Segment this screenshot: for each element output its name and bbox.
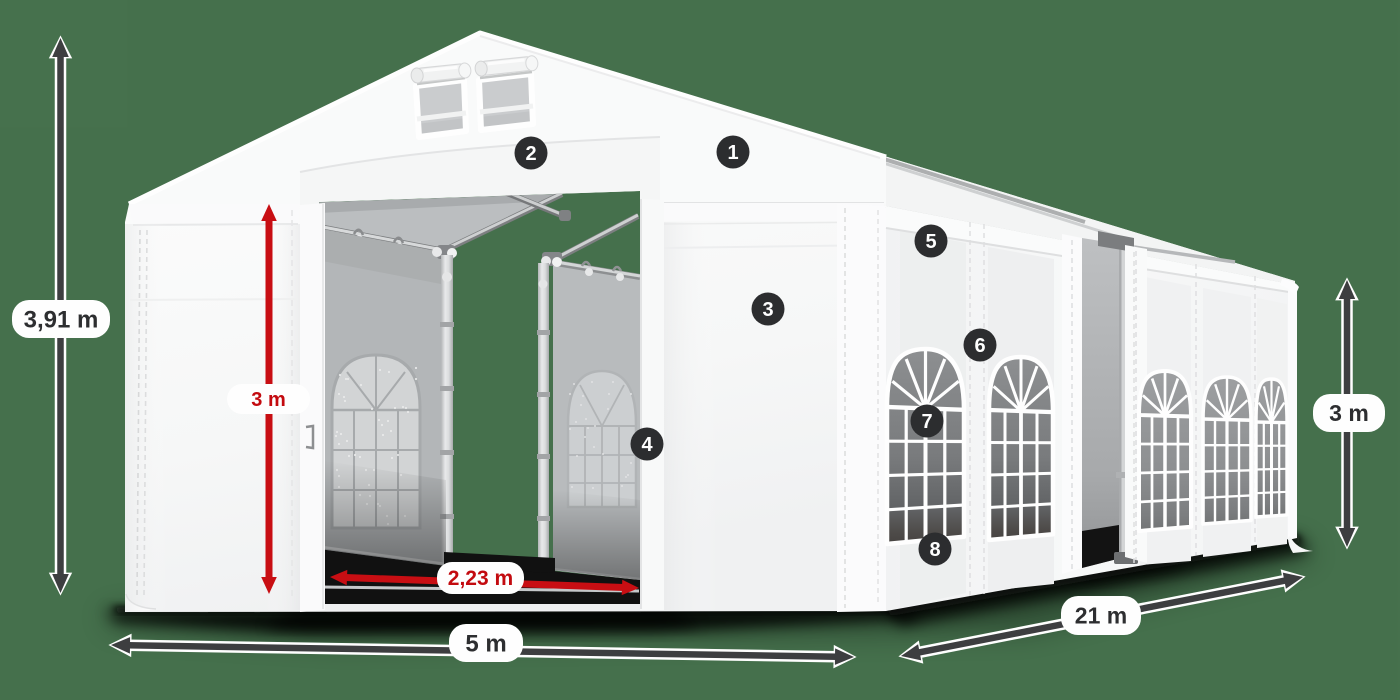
svg-text:3 m: 3 m xyxy=(251,389,285,411)
svg-text:6: 6 xyxy=(974,335,985,357)
svg-text:3: 3 xyxy=(762,299,773,321)
svg-text:1: 1 xyxy=(727,142,738,164)
svg-text:2,23 m: 2,23 m xyxy=(448,567,513,590)
svg-text:3 m: 3 m xyxy=(1329,400,1369,426)
svg-text:8: 8 xyxy=(929,539,940,561)
svg-text:5: 5 xyxy=(925,231,936,253)
svg-text:7: 7 xyxy=(921,411,932,433)
svg-text:3,91 m: 3,91 m xyxy=(24,306,99,333)
svg-text:21 m: 21 m xyxy=(1075,602,1127,628)
svg-text:4: 4 xyxy=(641,434,653,456)
svg-text:5 m: 5 m xyxy=(465,630,506,657)
svg-text:2: 2 xyxy=(525,143,536,165)
